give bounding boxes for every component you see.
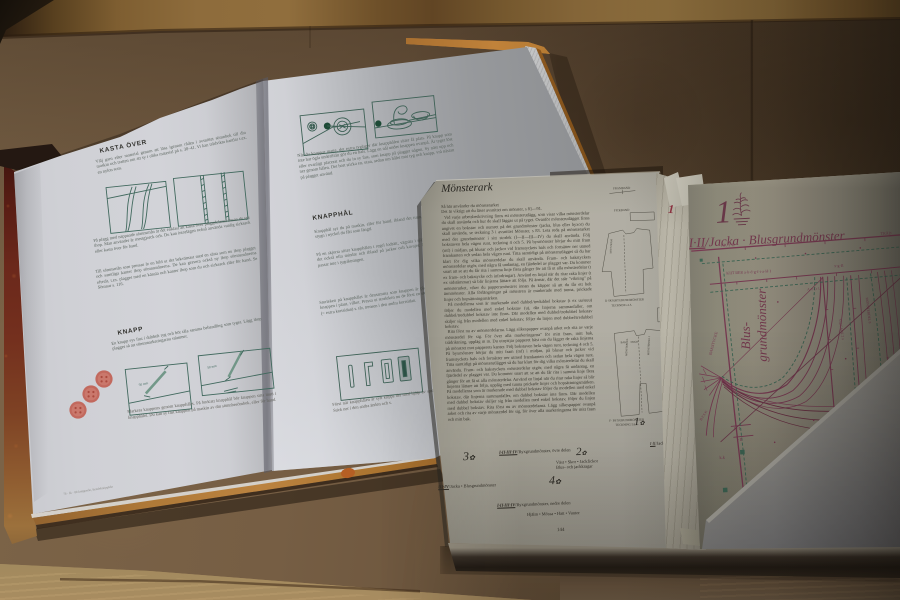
svg-text:TECKNING 4 A: TECKNING 4 A [611, 303, 632, 308]
svg-text:FRAM: FRAM [631, 341, 639, 344]
svg-text:K·I: K·I [734, 426, 741, 431]
svg-text:I·II: I·II [736, 437, 743, 442]
svg-text:MITT FRAM: MITT FRAM [610, 238, 614, 253]
svg-text:KIIT BER a·b·d·g·f·i·a·H·I: KIIT BER a·b·d·g·f·i·a·H·I [726, 268, 771, 275]
svg-text:x·g·II: x·g·II [834, 263, 844, 268]
svg-text:D SKJORTGRUNDMÖNSTER: D SKJORTGRUNDMÖNSTER [605, 296, 644, 302]
svg-text:50 mm: 50 mm [207, 364, 218, 370]
svg-text:BAKSTYCKE: BAKSTYCKE [708, 331, 719, 356]
svg-text:1: 1 [714, 193, 732, 230]
svg-text:MÖNSTERDEL 8: MÖNSTERDEL 8 [865, 297, 873, 324]
svg-text:50 mm: 50 mm [138, 381, 149, 387]
svg-text:FICKBAND: FICKBAND [614, 208, 630, 213]
svg-text:KK·T·II: KK·T·II [721, 242, 735, 248]
svg-text:grundmönster: grundmönster [754, 288, 770, 362]
svg-text:k.k: k.k [719, 455, 726, 460]
svg-text:A·T·D 5: A·T·D 5 [807, 287, 820, 292]
svg-text:MÖNSTERDEL 2: MÖNSTERDEL 2 [647, 335, 651, 355]
svg-text:I·II/Jacka · Blusgrundmönster: I·II/Jacka · Blusgrundmönster [687, 228, 845, 251]
svg-text:TRÅD: TRÅD [880, 230, 891, 236]
svg-text:FRAMBAND: FRAMBAND [613, 186, 631, 191]
svg-text:MÖNSTERDEL: MÖNSTERDEL [625, 338, 629, 356]
svg-text:Blus-: Blus- [738, 322, 753, 350]
svg-text:B.F.S.K: B.F.S.K [699, 409, 709, 421]
